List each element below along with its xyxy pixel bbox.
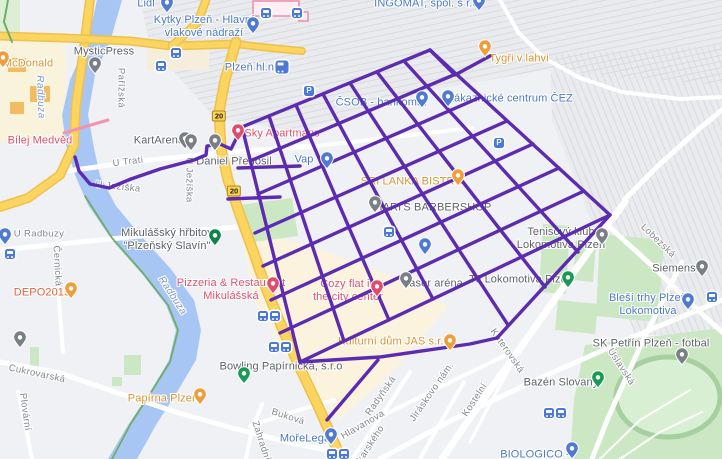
map-pin-biologico[interactable] — [566, 442, 579, 459]
map-pin-depo2015[interactable] — [65, 282, 78, 299]
map-pin-dome-poi[interactable] — [14, 331, 27, 348]
route-polyline — [497, 215, 610, 338]
map-pin-hrbitov[interactable] — [209, 229, 222, 246]
map-pin-ingomat[interactable] — [473, 0, 486, 11]
map-pin-mysticpress[interactable] — [89, 57, 102, 74]
map-pin-lidl[interactable] — [161, 0, 174, 13]
map-pin-csob[interactable] — [416, 91, 429, 108]
route-overlay-layer — [0, 0, 722, 459]
route-polyline — [271, 168, 559, 300]
map-pin-kytky[interactable] — [247, 17, 260, 34]
route-polyline — [238, 166, 300, 168]
route-polyline — [280, 191, 584, 333]
map-pin-cozy-flat[interactable] — [371, 280, 384, 297]
map-pin-tenisovy-klub[interactable] — [596, 228, 609, 245]
map-pin-bazen-slovany[interactable] — [592, 371, 605, 388]
route-polyline — [327, 360, 378, 420]
map-pin-haris-barbershop[interactable] — [369, 196, 382, 213]
map-pin-sk-petrin[interactable] — [676, 348, 689, 365]
map-canvas[interactable]: LidlKytky Plzeň - Hlavní vlakové nádraží… — [0, 0, 722, 459]
map-pin-morelega[interactable] — [325, 428, 338, 445]
route-polyline — [263, 144, 533, 266]
route-polyline — [228, 197, 280, 199]
map-pin-sky-apartmans[interactable] — [232, 124, 245, 141]
route-polyline — [255, 121, 507, 233]
map-pin-papirna[interactable] — [194, 388, 207, 405]
map-pin-laser-arena[interactable] — [400, 272, 413, 289]
route-polyline — [430, 50, 490, 75]
map-pin-siemens[interactable] — [696, 260, 709, 277]
map-pin-pizzeria[interactable] — [267, 277, 280, 294]
map-pin-shop-poi[interactable] — [419, 238, 432, 255]
map-pin-briefcase-poi[interactable] — [0, 228, 11, 245]
map-pin-daniel-prenosil-2[interactable] — [209, 134, 222, 151]
route-polyline — [269, 116, 344, 341]
map-pin-daniel-prenosil-1[interactable] — [185, 134, 198, 151]
map-pin-bowling[interactable] — [238, 367, 251, 384]
route-polyline — [300, 338, 497, 362]
map-pin-tj-lokomotiva[interactable] — [562, 271, 575, 288]
map-pin-blesi-trhy[interactable] — [682, 293, 695, 310]
map-pin-mcdonald[interactable] — [0, 51, 9, 68]
route-polyline — [242, 127, 300, 362]
